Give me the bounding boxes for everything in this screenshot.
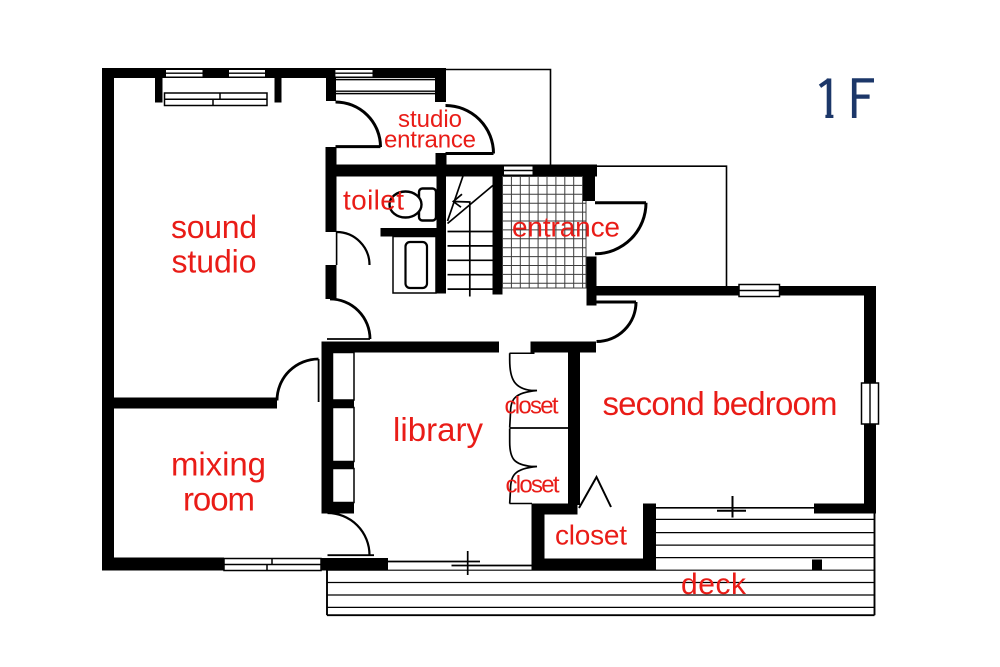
svg-text:deck: deck: [681, 568, 747, 601]
svg-text:sound: sound: [171, 209, 257, 245]
svg-text:library: library: [393, 411, 484, 448]
svg-text:entrance: entrance: [512, 212, 620, 243]
svg-text:closet: closet: [555, 520, 627, 551]
svg-text:closet: closet: [505, 393, 559, 420]
svg-text:mixing: mixing: [171, 446, 266, 483]
svg-text:toilet: toilet: [343, 185, 404, 216]
svg-text:room: room: [183, 481, 255, 518]
svg-text:closet: closet: [506, 472, 560, 499]
svg-text:studio: studio: [172, 244, 257, 280]
svg-text:entrance: entrance: [384, 127, 476, 154]
svg-text:second bedroom: second bedroom: [603, 385, 838, 422]
